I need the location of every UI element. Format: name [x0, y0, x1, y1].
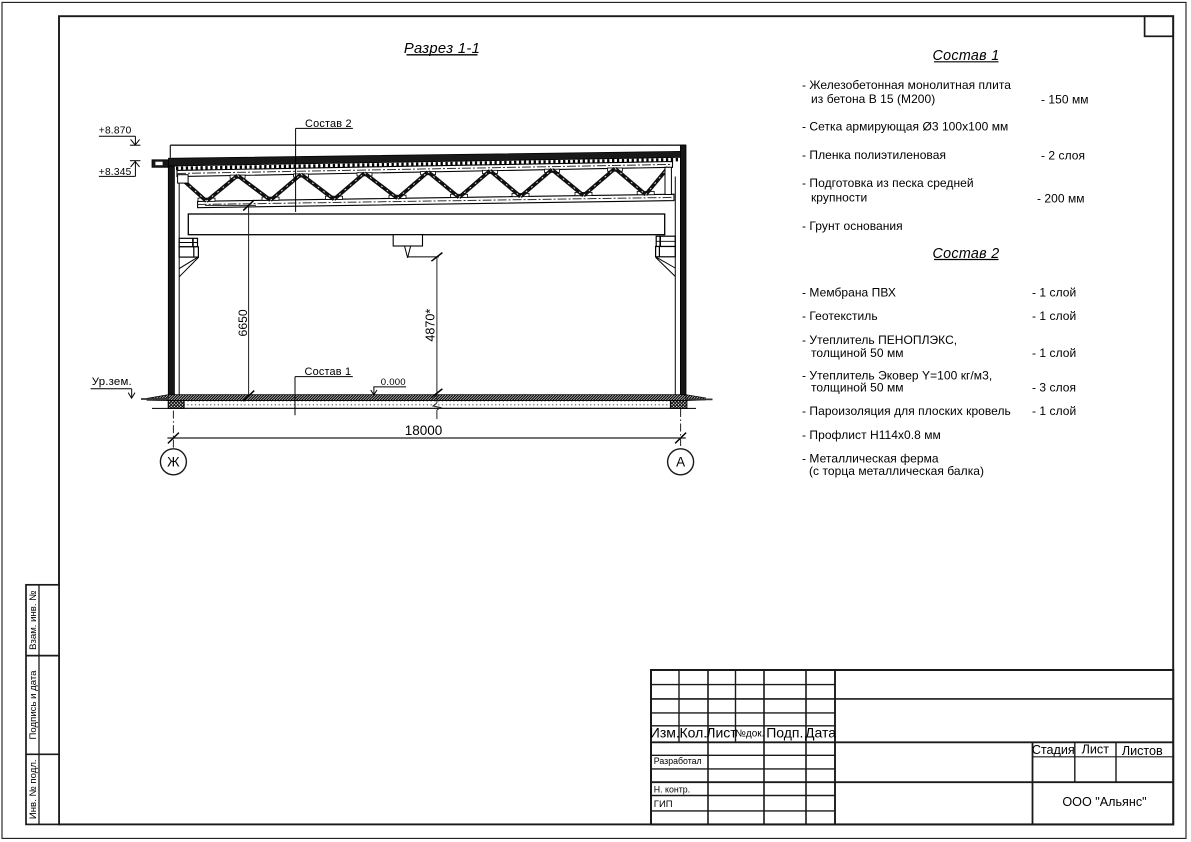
svg-text:- 1 слой: - 1 слой: [1032, 404, 1076, 418]
svg-text:Н. контр.: Н. контр.: [654, 785, 690, 795]
svg-text:- Подготовка из песка средней: - Подготовка из песка средней: [802, 176, 974, 190]
svg-text:Состав 2: Состав 2: [933, 246, 1000, 262]
svg-text:6650: 6650: [236, 309, 250, 336]
svg-text:Ур.зем.: Ур.зем.: [92, 376, 132, 388]
svg-text:Состав 2: Состав 2: [305, 118, 352, 130]
svg-text:+8.870: +8.870: [99, 126, 132, 137]
svg-text:Кол.: Кол.: [679, 725, 707, 741]
svg-text:- 2 слоя: - 2 слоя: [1041, 149, 1085, 163]
svg-text:- Железобетонная монолитная п: - Железобетонная монолитная плита: [802, 78, 1011, 92]
svg-text:Лист: Лист: [1082, 743, 1110, 757]
svg-text:Подп.: Подп.: [766, 725, 803, 741]
svg-text:- 1 слой: - 1 слой: [1032, 285, 1076, 299]
svg-text:- Профлист Н114х0.8 мм: - Профлист Н114х0.8 мм: [802, 428, 941, 442]
svg-text:крупности: крупности: [811, 190, 867, 204]
svg-text:Стадия: Стадия: [1032, 743, 1075, 757]
svg-text:Взам. инв. №: Взам. инв. №: [28, 590, 39, 649]
svg-text:(с торца металлическая балка): (с торца металлическая балка): [809, 464, 984, 478]
svg-text:Изм.: Изм.: [650, 725, 680, 741]
svg-text:- 3 слоя: - 3 слоя: [1032, 380, 1076, 394]
svg-text:- 1 слой: - 1 слой: [1032, 309, 1076, 323]
svg-text:ООО "Альянс": ООО "Альянс": [1062, 795, 1146, 809]
svg-text:18000: 18000: [405, 423, 443, 438]
svg-text:Разработал: Разработал: [654, 756, 702, 766]
svg-text:Состав 1: Состав 1: [305, 366, 352, 378]
svg-text:+8.345: +8.345: [99, 167, 132, 178]
svg-text:- Пленка полиэтиленовая: - Пленка полиэтиленовая: [802, 148, 946, 162]
svg-text:ГИП: ГИП: [654, 799, 673, 810]
svg-text:толщиной 50 мм: толщиной 50 мм: [811, 380, 904, 394]
svg-text:- Грунт основания: - Грунт основания: [802, 219, 903, 233]
svg-text:Листов: Листов: [1122, 744, 1163, 758]
svg-text:- 150 мм: - 150 мм: [1041, 93, 1089, 107]
svg-text:А: А: [676, 455, 685, 470]
svg-text:Подпись и дата: Подпись и дата: [28, 670, 39, 740]
svg-text:0.000: 0.000: [381, 377, 406, 388]
svg-text:4870*: 4870*: [424, 309, 438, 342]
svg-text:Ж: Ж: [167, 455, 180, 470]
svg-text:из бетона В 15 (М200): из бетона В 15 (М200): [811, 92, 935, 106]
svg-text:- Пароизоляция для плоских кро: - Пароизоляция для плоских кровель: [802, 404, 1011, 418]
svg-text:Инв. № подл.: Инв. № подл.: [28, 759, 39, 819]
svg-text:- 1 слой: - 1 слой: [1032, 346, 1076, 360]
svg-text:- 200 мм: - 200 мм: [1037, 191, 1085, 205]
svg-text:- Геотекстиль: - Геотекстиль: [802, 309, 878, 323]
svg-text:Лист: Лист: [706, 725, 737, 741]
svg-text:Состав 1: Состав 1: [933, 48, 1000, 64]
svg-text:Разрез 1-1: Разрез 1-1: [404, 41, 480, 57]
svg-text:Дата: Дата: [805, 725, 836, 741]
svg-text:- Мембрана ПВХ: - Мембрана ПВХ: [802, 285, 896, 299]
svg-text:толщиной 50 мм: толщиной 50 мм: [811, 346, 904, 360]
svg-text:- Сетка армирующая Ø3 100х100: - Сетка армирующая Ø3 100х100 мм: [802, 120, 1008, 134]
svg-text:- Утеплитель ПЕНОПЛЭКС,: - Утеплитель ПЕНОПЛЭКС,: [802, 333, 957, 347]
svg-text:№док.: №док.: [735, 729, 764, 740]
